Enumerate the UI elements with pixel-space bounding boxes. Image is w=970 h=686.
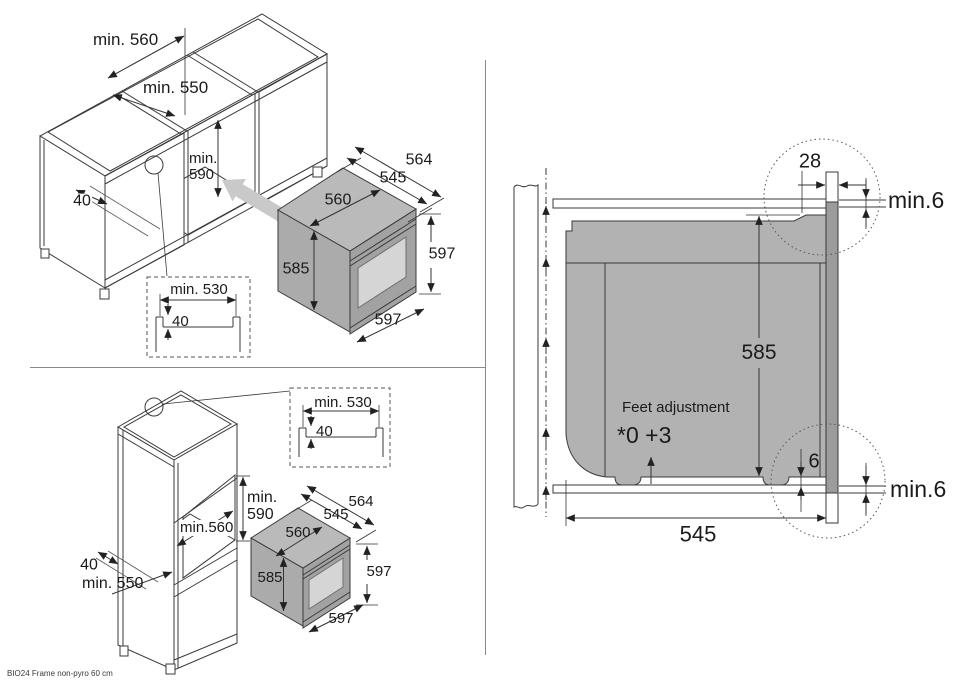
- dim-label-oven-top-width: 560: [325, 193, 352, 210]
- dim-label-oven-bottom-depth-total: 564: [348, 494, 373, 510]
- installation-diagram-page: min. 560 min. 550 min. 590 40 min. 530 4…: [0, 0, 970, 686]
- dim-label-side-body-depth: 545: [680, 522, 717, 545]
- dim-label-oven-bottom-width: 560: [285, 525, 310, 541]
- dim-label-oven-bottom-front-width: 597: [328, 611, 353, 627]
- dim-label-tall-niche-depth: min. 550: [82, 576, 143, 593]
- dim-label-base-niche-depth: min. 550: [143, 79, 208, 97]
- feet-adjustment-label: Feet adjustment: [622, 400, 730, 416]
- dim-label-oven-top-depth-total: 564: [406, 153, 433, 170]
- dim-label-oven-top-front-width: 597: [375, 313, 402, 330]
- dim-label-frame-lip: 28: [799, 152, 821, 173]
- dim-label-cutout-bottom-step: 40: [316, 424, 333, 440]
- dim-label-oven-bottom-body-height: 585: [257, 570, 282, 586]
- dim-label-oven-top-front-height: 597: [429, 247, 456, 264]
- dim-label-base-niche-width: min. 560: [93, 31, 158, 49]
- dim-label-base-niche-height: min. 590: [189, 151, 222, 183]
- model-footnote: BIO24 Frame non-pyro 60 cm: [7, 670, 113, 678]
- worktop-board: [553, 199, 826, 208]
- frame-top-lip: [826, 172, 838, 202]
- dim-label-tall-frame-width: 40: [80, 558, 98, 575]
- dim-label-oven-top-body-height: 585: [283, 262, 310, 279]
- bottom-shelf-board: [553, 485, 826, 493]
- frame-bottom-lip: [826, 493, 838, 523]
- dim-label-top-clearance: min.6: [888, 188, 944, 212]
- dim-label-tall-niche-width: min.560: [179, 520, 234, 536]
- diagram-linework: [0, 0, 970, 686]
- dim-label-cutout-bottom-width: min. 530: [314, 395, 372, 411]
- dim-label-bottom-clearance: min.6: [890, 477, 946, 501]
- dim-label-oven-bottom-front-height: 597: [366, 564, 391, 580]
- dim-label-oven-bottom-depth-body: 545: [323, 507, 348, 523]
- side-view-drawing: [514, 168, 886, 523]
- dim-label-oven-top-depth-body: 545: [380, 171, 407, 188]
- wall-panel: [514, 185, 538, 508]
- dim-label-base-frame-width: 40: [72, 194, 92, 211]
- dim-label-cutout-top-step: 40: [172, 314, 189, 330]
- feet-adjustment-range: *0 +3: [617, 423, 671, 447]
- front-frame-bar: [826, 202, 838, 493]
- dim-label-tall-niche-height: min. 590: [247, 490, 281, 524]
- dim-label-side-body-height: 585: [741, 342, 776, 364]
- dim-label-bottom-gap: 6: [808, 452, 819, 473]
- dim-label-cutout-top-width: min. 530: [170, 282, 228, 298]
